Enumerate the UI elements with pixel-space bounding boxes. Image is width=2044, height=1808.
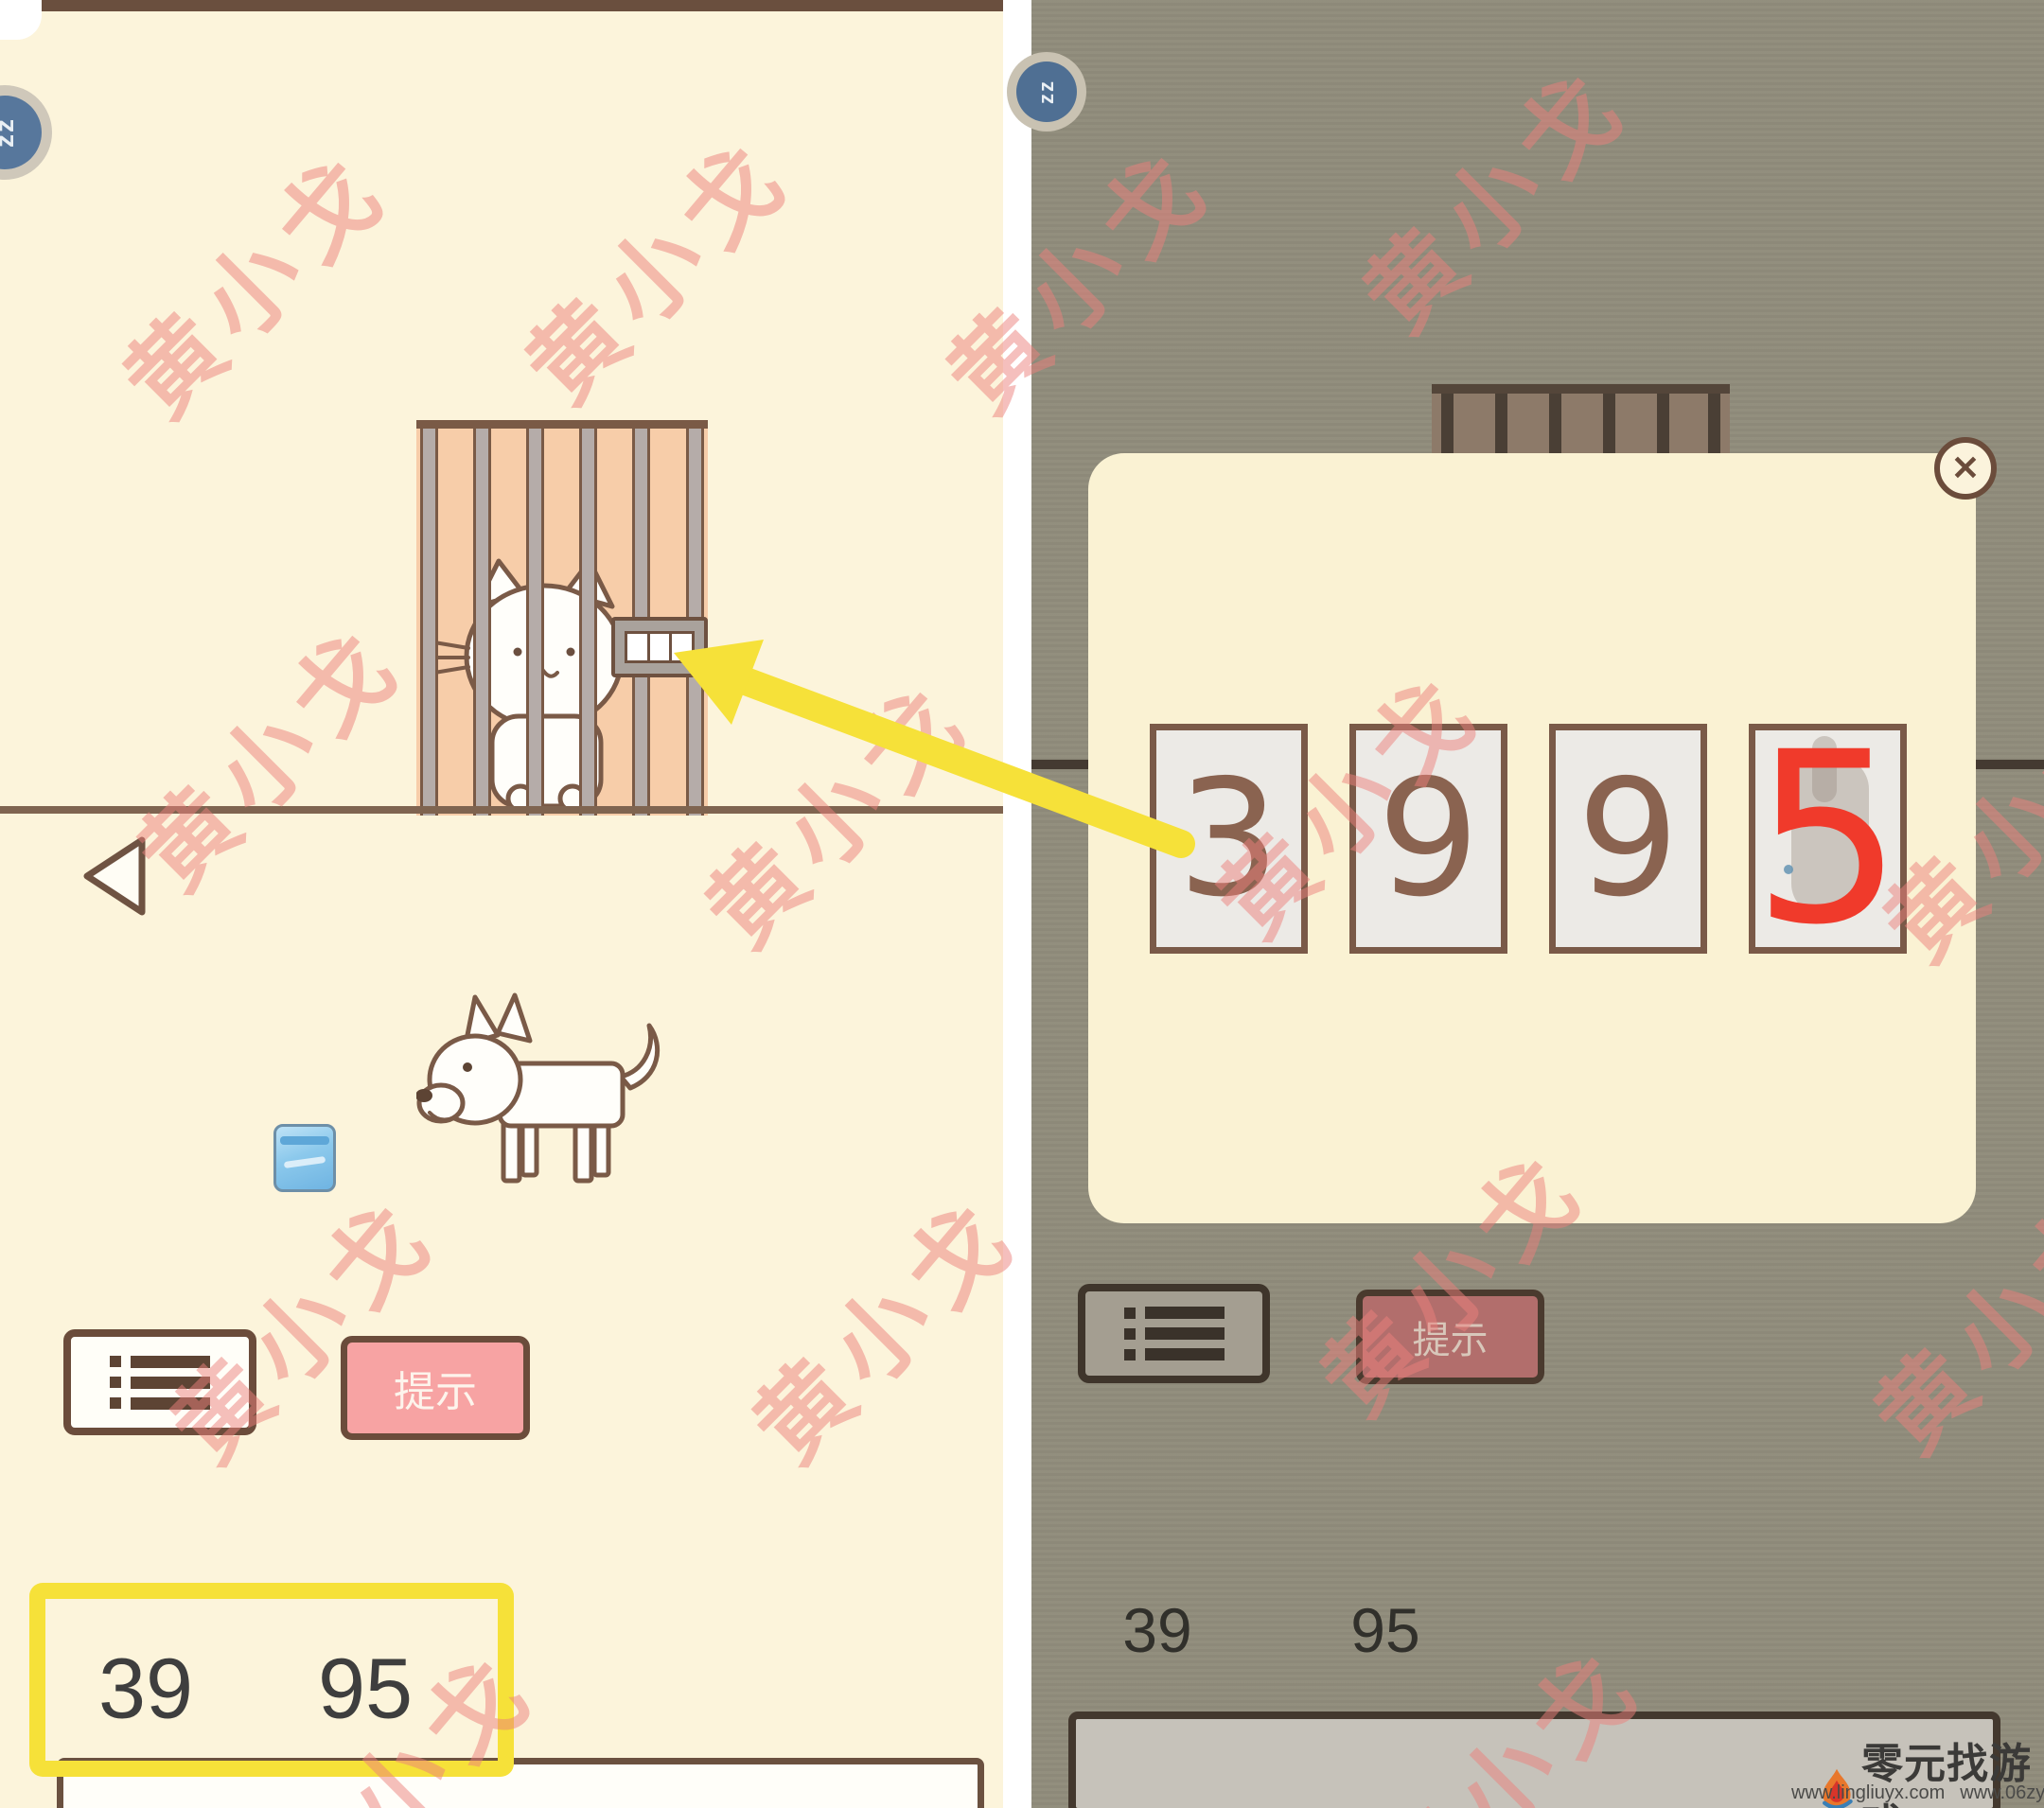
sound-sleep-icon: zz <box>1016 61 1077 122</box>
sound-toggle-button[interactable]: zz <box>1007 52 1086 132</box>
list-icon <box>1124 1307 1225 1360</box>
sound-toggle-button[interactable]: zz <box>0 85 52 180</box>
ice-detail <box>280 1136 329 1145</box>
logo-url: www.lingliuyx.com <box>1791 1782 1945 1804</box>
close-button[interactable]: ✕ <box>1934 437 1997 500</box>
code-digit-dial[interactable]: 9 <box>1549 724 1707 954</box>
logo-url: www.06zyx.com <box>1960 1782 2044 1804</box>
site-logo: 零元找游戏 www.lingliuyx.com www.06zyx.com <box>1784 1724 2044 1808</box>
walkthrough-composite: zz <box>0 0 2044 1808</box>
cat-cage <box>416 420 708 816</box>
clue-number: 95 <box>1350 1594 1419 1666</box>
cage-bar <box>526 426 544 816</box>
ceiling-line <box>42 0 1003 11</box>
cage-bar <box>473 426 491 816</box>
ice-detail <box>284 1156 326 1168</box>
ice-cube-item[interactable] <box>273 1124 336 1192</box>
inventory-menu-button-dimmed[interactable] <box>1078 1284 1270 1383</box>
close-icon: ✕ <box>1951 448 1980 488</box>
sound-sleep-icon: zz <box>0 96 42 169</box>
left-screenshot-panel: zz <box>0 0 1003 1808</box>
dog[interactable] <box>416 990 672 1198</box>
corner-notch <box>0 0 42 40</box>
cage-bar <box>420 426 438 816</box>
cage-top-frame <box>416 420 708 429</box>
clue-number: 39 <box>1122 1594 1191 1666</box>
cage-bar <box>579 426 597 816</box>
hint-button[interactable]: 提示 <box>341 1336 530 1440</box>
combination-lock[interactable] <box>611 617 708 677</box>
lock-keypad-icon <box>625 631 695 663</box>
code-digit: 9 <box>1577 746 1679 933</box>
